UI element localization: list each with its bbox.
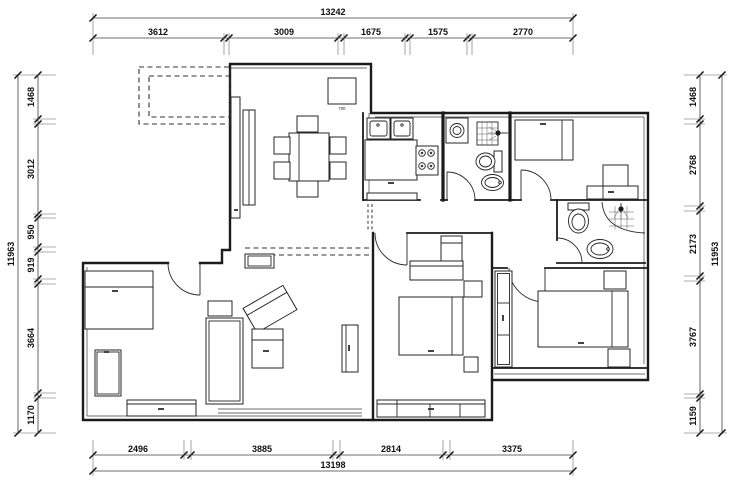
bedroom-left xyxy=(85,271,196,416)
wardrobe xyxy=(95,350,121,396)
toilet-icon xyxy=(476,151,502,172)
dim-right-total: 11953 xyxy=(710,242,720,267)
basin-icon xyxy=(587,240,613,259)
chair xyxy=(274,137,290,154)
bed xyxy=(399,297,463,355)
low-cabinet xyxy=(127,400,196,416)
floor-plan-drawing: 13242 3612 3009 1675 1575 2770 13198 249… xyxy=(0,0,740,493)
door-bedroom-middle xyxy=(375,233,407,265)
stove-icon xyxy=(416,146,438,175)
dim-top-seg-1: 3612 xyxy=(148,27,168,37)
bathroom-1 xyxy=(446,118,508,191)
toilet-icon xyxy=(568,203,589,233)
bedroom-bottom-right xyxy=(495,271,630,367)
nightstand xyxy=(464,281,482,297)
dim-left-total: 11963 xyxy=(6,242,16,267)
dim-right-seg-5: 1159 xyxy=(688,406,698,426)
dining-room: 700 xyxy=(231,78,356,268)
washing-machine-icon xyxy=(446,118,468,143)
kitchen xyxy=(365,118,438,200)
kitchen-counter xyxy=(365,140,417,180)
dim-bottom-total: 13198 xyxy=(320,460,345,470)
dim-bottom-seg-1: 2496 xyxy=(128,444,148,454)
bed xyxy=(538,291,628,347)
desk xyxy=(587,165,638,199)
shower-icon xyxy=(477,122,508,145)
floor-plan-canvas: 13242 3612 3009 1675 1575 2770 13198 249… xyxy=(0,0,740,493)
dim-right-seg-1: 1468 xyxy=(688,87,698,107)
nightstand xyxy=(464,357,478,372)
dim-top-seg-3: 1675 xyxy=(361,27,381,37)
dim-bottom-seg-2: 3885 xyxy=(252,444,272,454)
dim-left-seg-1: 1468 xyxy=(26,87,36,107)
dim-right-seg-4: 3767 xyxy=(688,327,698,347)
armchair xyxy=(243,285,297,332)
fridge xyxy=(328,78,356,104)
kitchen-opening-dashed xyxy=(368,204,372,231)
desk xyxy=(410,261,463,280)
bedroom-middle xyxy=(377,236,485,417)
shower-icon xyxy=(602,202,645,233)
chair xyxy=(330,162,346,179)
dim-right-seg-2: 2768 xyxy=(688,155,698,175)
dim-top-total: 13242 xyxy=(320,7,345,17)
bed xyxy=(85,271,153,329)
door-bedroom-top-right xyxy=(521,170,551,200)
dim-left-seg-6: 1170 xyxy=(26,405,36,425)
dim-top-seg-5: 2770 xyxy=(513,27,533,37)
chair xyxy=(297,181,318,197)
chair xyxy=(274,162,290,179)
door-bathroom-1 xyxy=(447,172,475,200)
chair xyxy=(297,116,318,132)
bookshelf xyxy=(231,97,240,218)
bedroom-top-right xyxy=(515,120,638,199)
kitchen-sink-icon xyxy=(367,118,413,139)
dim-bottom-seg-3: 2814 xyxy=(381,444,401,454)
living-room xyxy=(206,285,358,404)
window-living-south xyxy=(218,409,362,413)
dim-left-seg-2: 3012 xyxy=(26,159,36,179)
dim-left-seg-3: 950 xyxy=(26,224,36,239)
door-bathroom-2 xyxy=(557,238,582,263)
exterior-walls xyxy=(83,64,648,420)
dim-top-seg-2: 3009 xyxy=(274,27,294,37)
dim-left-seg-5: 3664 xyxy=(26,328,36,348)
cabinet xyxy=(208,301,232,316)
door-bedroom-left xyxy=(168,263,200,295)
basin-icon xyxy=(482,175,504,191)
dim-top-seg-4: 1575 xyxy=(428,27,448,37)
hall-cabinet xyxy=(245,254,274,268)
kitchen-counter-south xyxy=(367,193,417,200)
nightstand xyxy=(604,271,626,289)
fridge-width-label: 700 xyxy=(339,106,347,111)
dim-right-seg-3: 2173 xyxy=(688,234,698,254)
balcony-dashed-outline xyxy=(139,67,230,124)
coffee-table xyxy=(252,329,283,368)
bathroom-2 xyxy=(568,202,645,259)
furniture-dim-marks xyxy=(104,124,614,409)
wardrobe xyxy=(206,318,243,404)
bed xyxy=(515,120,573,160)
dim-left-seg-4: 919 xyxy=(26,257,36,272)
chair xyxy=(330,137,346,154)
cabinet xyxy=(441,236,462,262)
dimension-labels: 13242 3612 3009 1675 1575 2770 13198 249… xyxy=(6,7,720,470)
dim-bottom-seg-4: 3375 xyxy=(502,444,522,454)
dining-table xyxy=(289,133,329,181)
tv-cabinet xyxy=(342,325,358,372)
nightstand xyxy=(608,349,630,367)
